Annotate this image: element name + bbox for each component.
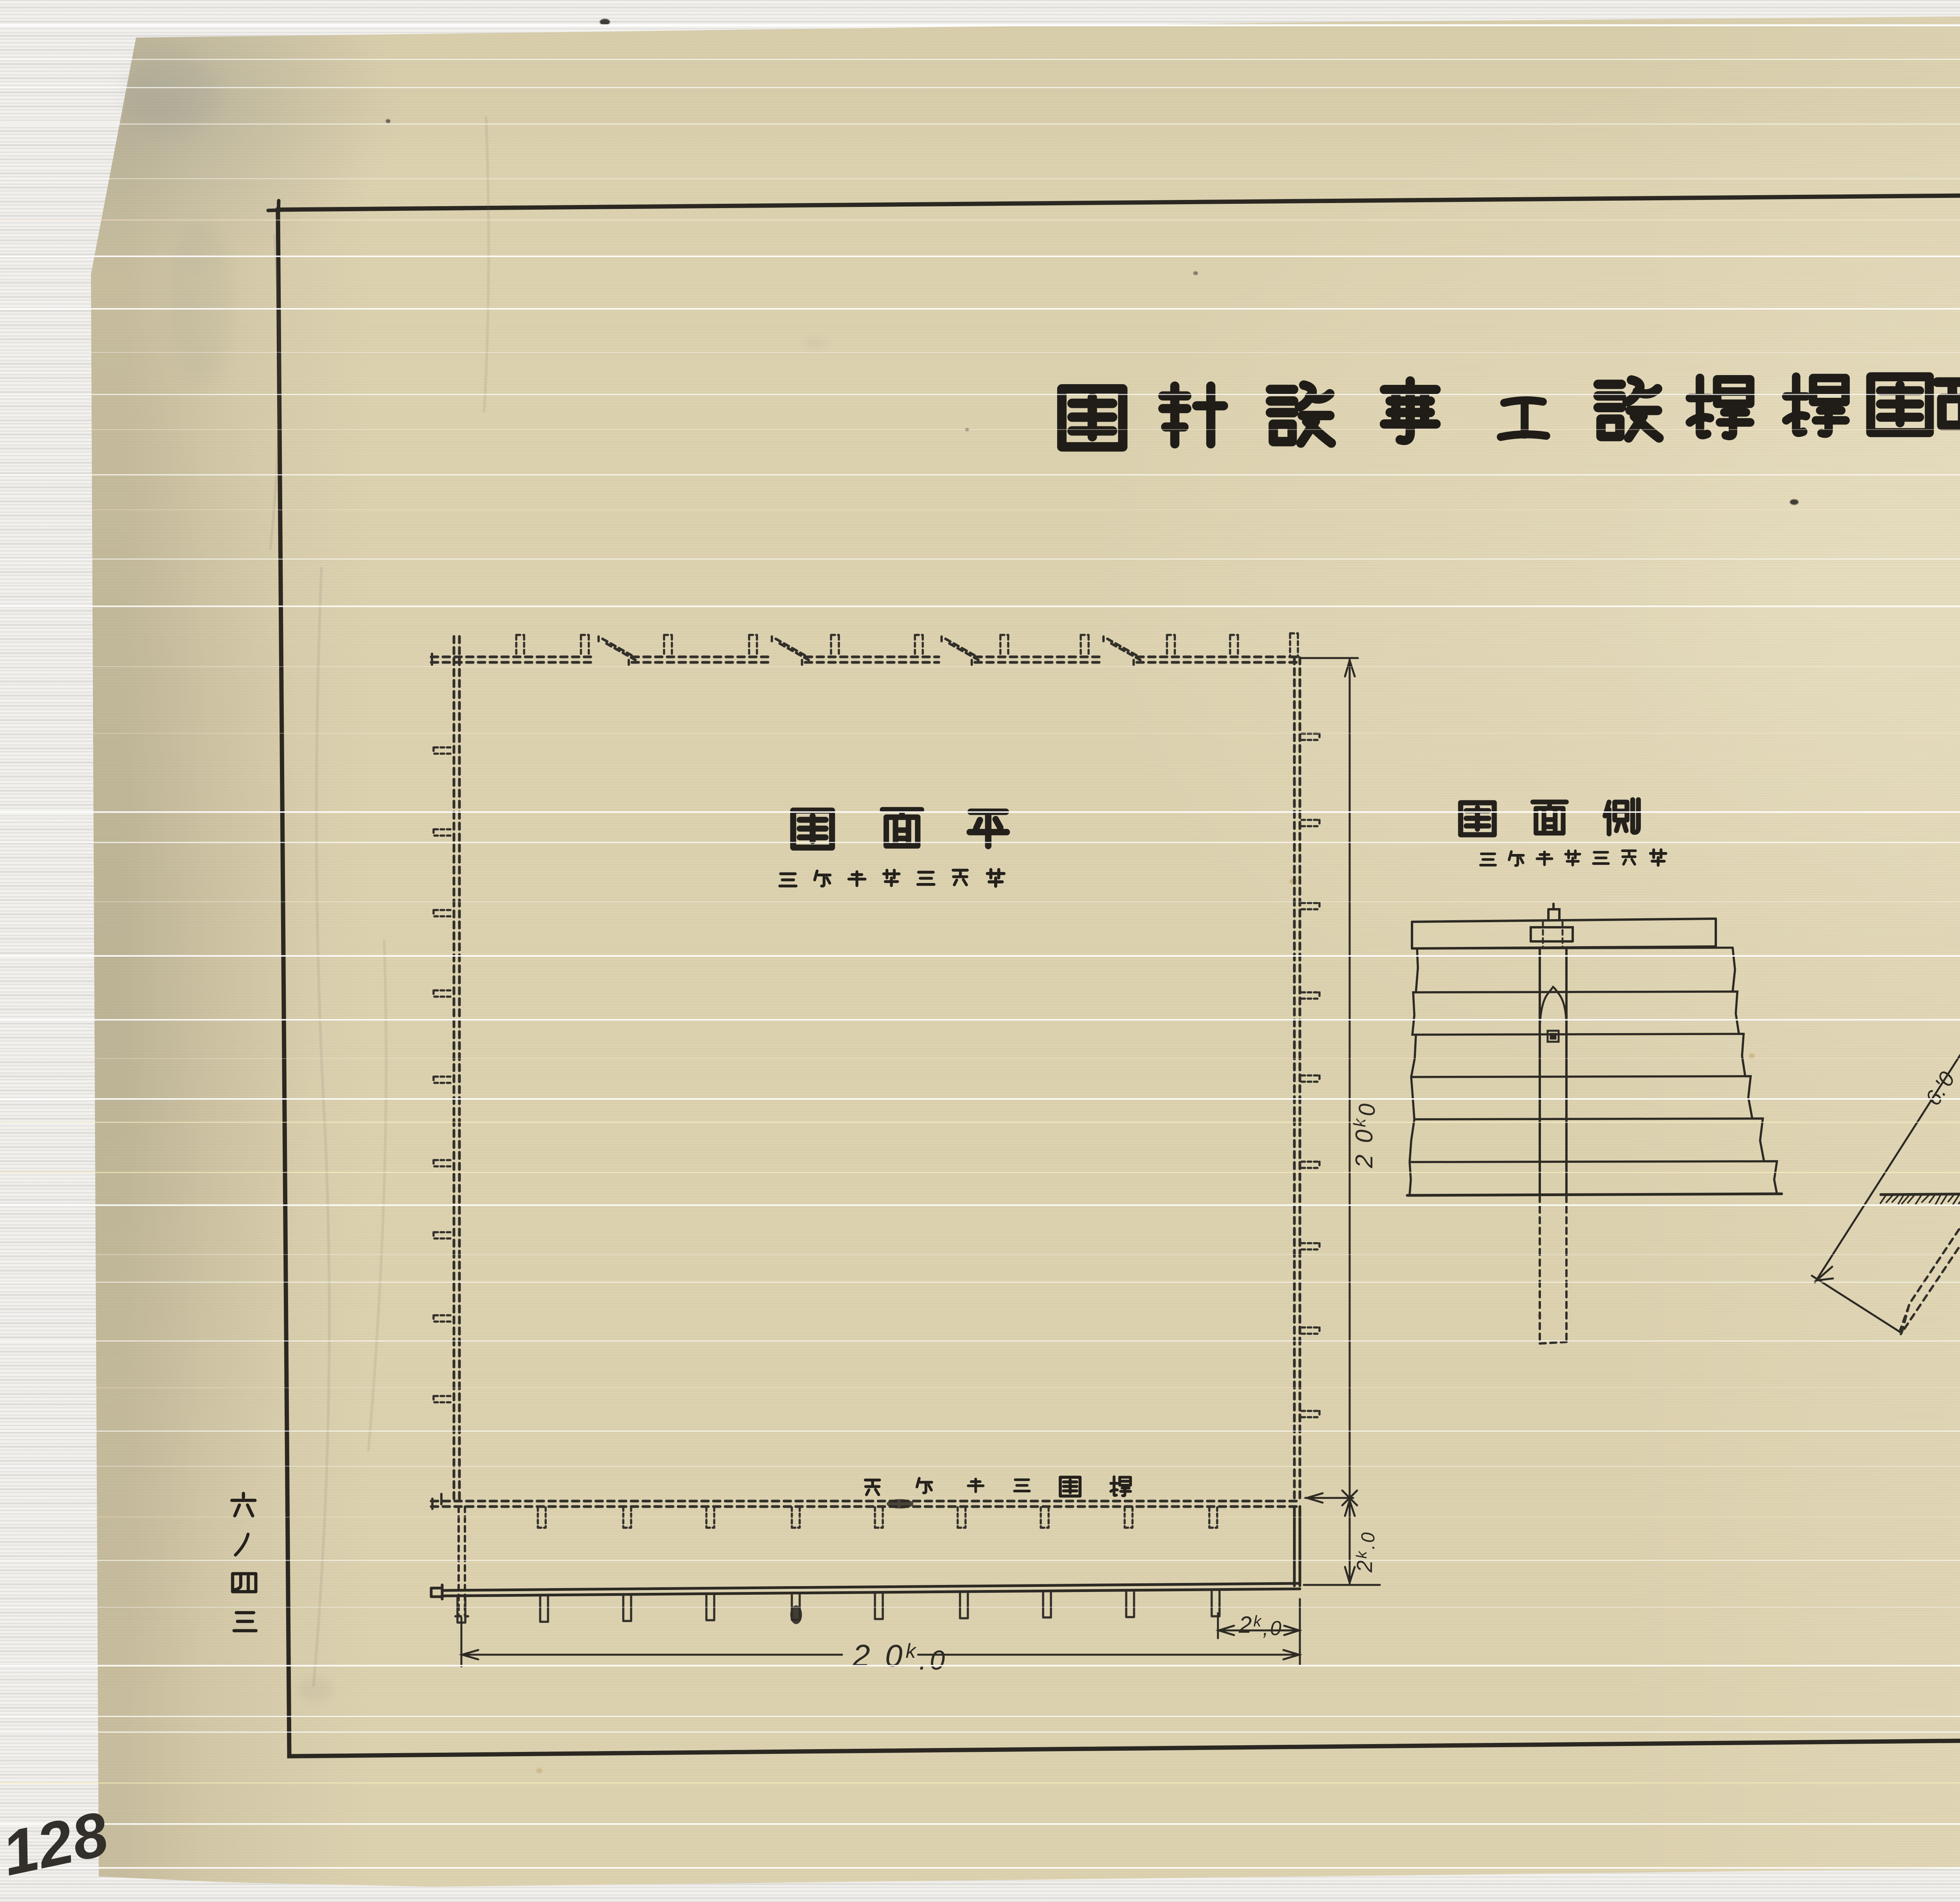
svg-text:2k.0: 2k.0 — [1352, 1531, 1379, 1573]
svg-text:6.'0: 6.'0 — [1920, 1067, 1960, 1110]
svg-text:2k,0: 2k,0 — [1238, 1612, 1283, 1640]
svg-text:2 0k.0: 2 0k.0 — [852, 1638, 948, 1675]
svg-text:2 0k0: 2 0k0 — [1350, 1101, 1380, 1168]
